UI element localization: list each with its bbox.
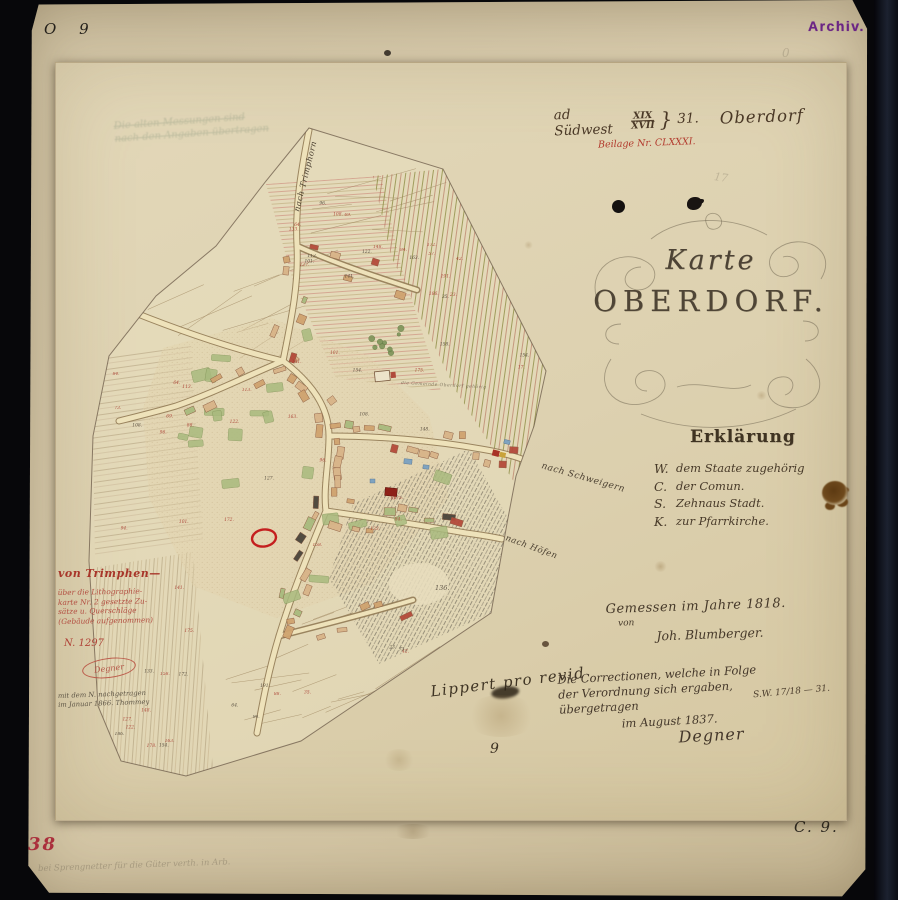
building <box>509 447 518 454</box>
parcel-number: 84. <box>113 372 120 377</box>
calligraphic-flourishes <box>581 209 841 429</box>
building <box>499 461 507 468</box>
building <box>335 475 341 488</box>
title-line2: OBERDORF. <box>589 284 833 318</box>
parcel-number: 94. <box>121 527 128 532</box>
stain <box>382 749 416 771</box>
garden-plot <box>228 428 243 441</box>
building <box>283 266 289 275</box>
stain <box>822 481 848 505</box>
parcel-number: 113. <box>307 254 317 259</box>
pencil-note-bottom-left: bei Sprengnetter für die Güter verth. in… <box>38 856 268 874</box>
stain <box>524 241 533 249</box>
parcel-number: 141. <box>345 274 355 279</box>
garden-plot <box>309 575 329 583</box>
stain <box>390 824 436 839</box>
map-title: Karte OBERDORF. <box>589 219 833 424</box>
parcel-number: 154. <box>520 354 530 359</box>
parcel-number: 101. <box>330 351 340 356</box>
legend-label: Zehnaus Stadt. <box>676 495 764 513</box>
parcel-number: 163. <box>288 415 298 420</box>
parcel-number: 23. <box>388 646 396 651</box>
parcel-number: 172. <box>427 243 437 248</box>
surveyor-name: Joh. Blumberger. <box>656 624 787 644</box>
parcel-number: 35. <box>304 690 311 695</box>
building <box>334 438 340 445</box>
parcel-number: 69. <box>344 213 351 218</box>
parcel-number: 57. <box>428 252 435 257</box>
margin-note-heading: von Trimphen— <box>58 567 172 580</box>
legend-heading: Erklärung <box>690 427 834 447</box>
parcel-number: 186. <box>115 732 125 737</box>
building <box>473 453 480 460</box>
correction-signature: Degner <box>678 722 781 746</box>
tree <box>398 325 404 331</box>
fraction-brace: } <box>659 107 673 131</box>
legend-symbol: C. <box>654 478 676 496</box>
legend-row: K. zur Pfarrkirche. <box>654 513 834 531</box>
legend-row: S. Zehnaus Stadt. <box>654 495 834 513</box>
parcel-number: 96. <box>160 431 167 436</box>
legend: Erklärung W. dem Staate zugehörig C. der… <box>654 427 834 530</box>
parcel-number: 113. <box>182 385 192 390</box>
parcel-number: 163. <box>409 256 419 261</box>
parcel-number: 122. <box>230 420 240 425</box>
building <box>397 504 407 512</box>
legend-label: zur Pfarrkirche. <box>676 513 769 531</box>
parcel-number: 127. <box>264 477 274 482</box>
margin-note: von Trimphen— über die Lithographie- kar… <box>58 567 172 707</box>
stain <box>464 695 538 737</box>
parcel-number: 64. <box>173 381 180 386</box>
legend-symbol: W. <box>654 460 676 478</box>
parcel-number: 172. <box>224 518 234 523</box>
building <box>353 426 360 432</box>
building <box>384 508 396 516</box>
building <box>314 413 323 423</box>
parcel-number: 96. <box>320 459 327 464</box>
edge-label: nach Höfen <box>504 533 559 561</box>
parcel-number: 23. <box>449 293 457 298</box>
building <box>283 256 290 263</box>
garden-plot <box>302 466 314 479</box>
archival-scan: { "marks": { "top_left": "O 9", "archive… <box>0 0 898 900</box>
header-place: Oberdorf <box>719 105 804 127</box>
parcel-number: 88. <box>274 692 281 697</box>
garden-plot <box>430 526 449 540</box>
legend-row: C. der Comun. <box>654 478 834 496</box>
parcel-number: 17. <box>403 703 410 708</box>
map-line <box>436 714 463 726</box>
survey-note: Gemessen im Jahre 1818. von Joh. Blumber… <box>605 596 787 645</box>
garden-plot <box>188 440 203 448</box>
building <box>459 432 465 439</box>
building <box>315 424 323 437</box>
parcel-number: 108. <box>132 424 142 429</box>
slope-parcel-number: 136. <box>435 584 449 592</box>
parcel-number: 84. <box>395 517 402 522</box>
building <box>347 499 355 504</box>
tree <box>387 347 392 352</box>
parcel-number: 122. <box>126 726 136 731</box>
tree <box>369 335 375 341</box>
margin-note-number: N. 1297 <box>64 638 172 649</box>
ink-dot-small <box>384 50 391 56</box>
parcel-number: 154. <box>353 369 363 374</box>
parcel-number: 127. <box>122 718 132 723</box>
fraction-bottom: XVII <box>631 120 655 130</box>
parcel-number: 35. <box>442 295 449 300</box>
parcel-number: 133. <box>289 227 299 232</box>
garden-plot <box>266 382 283 392</box>
header-prefix: ad Südwest <box>554 105 627 139</box>
parcel-number: 57. <box>409 685 416 690</box>
header-number: 31. <box>677 110 699 127</box>
building <box>344 420 354 429</box>
parcel-number: 175. <box>184 629 194 634</box>
parcel-number: 154. <box>159 744 169 749</box>
tree <box>397 333 401 337</box>
bottom-center-mark: 9 <box>490 741 499 757</box>
correction-note: Die Correctionen, welche in Folge der Ve… <box>557 661 781 752</box>
garden-plot <box>212 410 222 421</box>
parcel-number: 73. <box>114 406 121 411</box>
margin-note-red-text: über die Lithographie- karte Nr. 2 geset… <box>58 586 173 626</box>
parcel-number: 73. <box>399 648 406 653</box>
book-spine-edge <box>874 0 898 900</box>
archive-stamp: Archiv. <box>808 18 865 34</box>
building <box>424 518 434 522</box>
parcel-number: 191. <box>441 274 451 279</box>
stamp-signature: Degner <box>94 662 125 675</box>
parcel-number: 101. <box>179 520 189 525</box>
legend-label: dem Staate zugehörig <box>676 460 805 478</box>
margin-red-line: (Gebäude aufgenommen) <box>58 615 172 626</box>
margin-note-black-text: mit dem N. nachgetragen im Januar 1866. … <box>58 688 173 709</box>
parcel-number: 108. <box>359 412 369 417</box>
paper-backing: O 9 Archiv. 0 38 bei Sprengnetter für di… <box>18 0 880 900</box>
legend-items: W. dem Staate zugehörig C. der Comun. S.… <box>654 460 834 530</box>
parcel-number: 94. <box>253 715 260 720</box>
parcel-number: 148. <box>420 428 430 433</box>
parcel-number: 178. <box>496 255 506 260</box>
parcel-number: 113. <box>242 388 252 393</box>
pencil-mark-top: 17 <box>713 170 729 185</box>
title-line1: Karte <box>589 245 833 276</box>
legend-symbol: S. <box>654 495 676 513</box>
building <box>331 488 337 496</box>
parcel-number: 141. <box>292 360 302 365</box>
parcel-number: 158. <box>440 342 450 347</box>
building <box>313 496 319 509</box>
legend-symbol: K. <box>654 513 676 531</box>
parcel-number: 108. <box>333 212 343 217</box>
map-line <box>396 694 429 721</box>
parcel-number: 122. <box>362 250 372 255</box>
legend-row: W. dem Staate zugehörig <box>654 460 834 478</box>
parcel-number: 191. <box>260 684 270 689</box>
header-inscription: ad Südwest XIX XVII } 31. Oberdorf Beila… <box>554 103 804 147</box>
stain <box>542 641 549 647</box>
parcel-number: 69. <box>166 414 173 419</box>
map-line <box>428 665 452 679</box>
red-number-bottom-left: 38 <box>28 834 57 855</box>
parcel-number: 64. <box>231 704 238 709</box>
pencil-mark-right: 0 <box>782 46 790 60</box>
parcel-number: 158. <box>313 543 323 548</box>
parcel-number: 175. <box>393 496 403 501</box>
garden-plot <box>221 478 239 489</box>
parcel-number: 172. <box>179 672 189 677</box>
edge-label: nach Schweigern <box>540 461 626 494</box>
stain <box>654 561 667 572</box>
parcel-number: 148. <box>373 245 383 250</box>
parcel-number: 88. <box>187 423 194 428</box>
sheet-fraction: XIX XVII <box>631 110 655 130</box>
parcel-number: 186. <box>429 292 439 297</box>
parcel-number: 42. <box>455 257 463 262</box>
parcel-number: 96. <box>319 201 326 206</box>
parcel-number: 84. <box>400 248 407 253</box>
map-sheet: Die alten Messungen sind nach den Angabe… <box>55 62 847 821</box>
parcel-number: 141. <box>174 586 184 591</box>
building <box>364 425 374 430</box>
parcel-number: 133. <box>370 527 380 532</box>
archive-mark-top-left: O 9 <box>44 20 98 38</box>
garden-plot <box>211 354 231 362</box>
paper-damage-spot <box>485 607 513 635</box>
parcel-number: 163. <box>165 739 175 744</box>
legend-label: der Comun. <box>676 478 744 496</box>
parcel-number: 178. <box>147 744 157 749</box>
map-line <box>398 684 435 708</box>
parcel-number: 175. <box>415 368 425 373</box>
tree <box>373 345 378 350</box>
parcel-number: 148. <box>141 709 151 714</box>
tree <box>379 343 384 348</box>
oval-stamp: Degner <box>81 655 137 681</box>
parcel-number: 17. <box>518 366 525 371</box>
stain <box>756 391 767 400</box>
parcel-number: 127. <box>300 263 310 268</box>
building <box>337 627 347 632</box>
